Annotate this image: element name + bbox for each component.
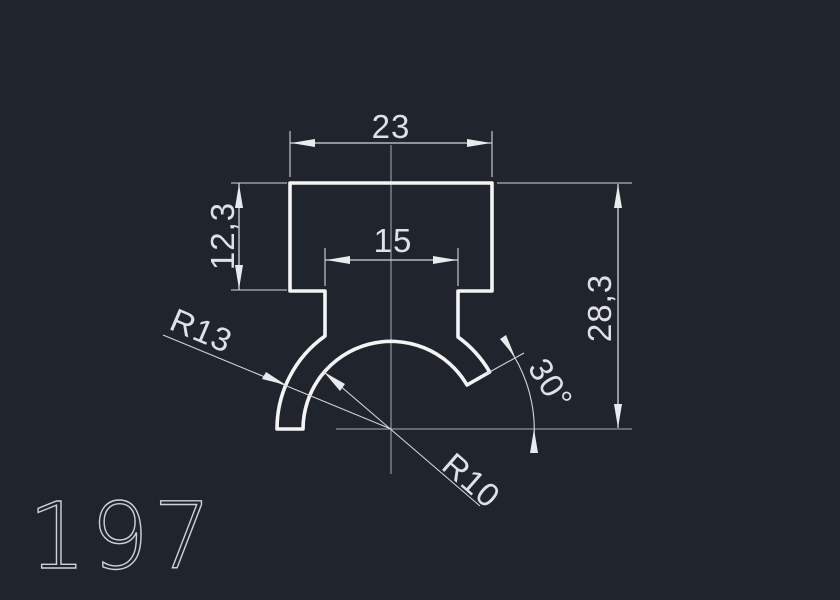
profile-number-label: 197 <box>28 483 216 590</box>
dim-inner-radius: R10 <box>324 372 508 515</box>
arrowhead <box>500 335 515 357</box>
arrowhead <box>530 429 538 453</box>
dim-label-neck-width: 15 <box>374 222 413 259</box>
arrowhead <box>433 256 457 264</box>
dim-label-top-width: 23 <box>372 108 411 145</box>
arrowhead <box>291 139 315 147</box>
dim-cut-angle: 30° <box>486 335 580 453</box>
arrowhead <box>614 184 622 208</box>
angle-dimension-arc <box>505 343 534 449</box>
cad-viewport: 23 12,3 15 28,3 R13 R10 <box>0 0 840 600</box>
arrowhead <box>467 139 491 147</box>
dim-cap-height: 12,3 <box>204 183 287 290</box>
profile-outline <box>277 183 492 429</box>
arrowhead <box>326 256 350 264</box>
dim-label-cut-angle: 30° <box>521 352 580 416</box>
dim-label-cap-height: 12,3 <box>204 202 241 270</box>
arrowhead <box>324 372 345 391</box>
arrowhead <box>262 372 286 385</box>
cad-drawing-canvas: 23 12,3 15 28,3 R13 R10 <box>0 0 840 600</box>
dim-label-total-height: 28,3 <box>581 274 618 342</box>
arrowhead <box>614 404 622 428</box>
dim-label-inner-radius: R10 <box>435 446 507 516</box>
